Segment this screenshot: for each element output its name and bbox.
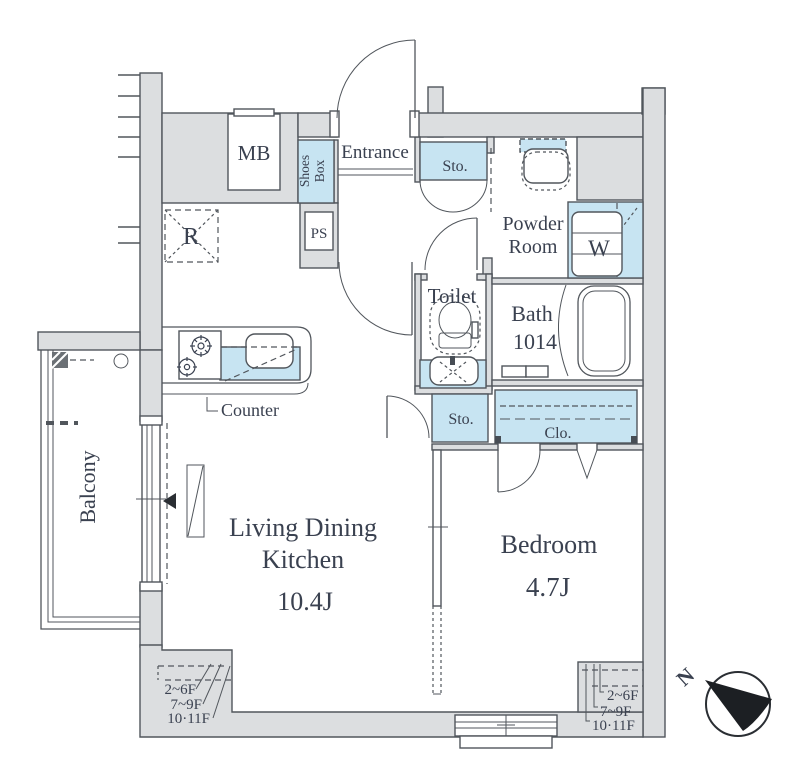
closet-door-arc [498, 450, 540, 492]
label-floors-right-3: 10·11F [592, 718, 635, 734]
wall-toilet-right [486, 274, 492, 390]
bath-ledge-2 [526, 366, 548, 377]
label-ldk-1: Living Dining [229, 513, 377, 542]
window-jamb-bottom [140, 582, 162, 591]
wall-left-lower [140, 585, 162, 647]
storage-top [420, 142, 487, 212]
counter-front-edge [162, 383, 308, 394]
wall-bedroom-top-3 [597, 444, 643, 450]
kitchen [162, 327, 311, 411]
label-meter-box: MB [238, 141, 271, 165]
label-bath-size: 1014 [513, 329, 557, 354]
entrance-door-arc [337, 40, 415, 118]
wall-bedroom-top-2 [540, 444, 577, 450]
window-frame [142, 421, 160, 585]
meter-box-lid [234, 109, 274, 116]
adjacent-unit-ticks [118, 75, 140, 243]
label-entrance: Entrance [341, 142, 409, 163]
label-bedroom: Bedroom [501, 530, 598, 559]
label-bath: Bath [511, 301, 553, 326]
label-shoes-box-2: Box [312, 160, 327, 183]
bedroom-window-sill [460, 736, 552, 748]
closet-bifold-door [577, 450, 597, 478]
bath-door-curve [558, 285, 568, 376]
label-shoes-box-1: Shoes [297, 155, 312, 187]
label-powder-1: Powder [502, 213, 563, 235]
label-powder-2: Room [509, 236, 558, 258]
toilet-seat [439, 333, 471, 348]
compass [705, 672, 772, 736]
wall-balcony-top [38, 332, 140, 350]
label-ldk-2: Kitchen [262, 545, 344, 574]
label-storage-mid: Sto. [448, 411, 473, 428]
label-pipe-space: PS [311, 226, 328, 242]
label-floors-left-1: 2~6F [165, 682, 196, 698]
label-washer: W [588, 236, 610, 261]
window-jamb-top [140, 416, 162, 425]
storage-door-arc-left [420, 180, 453, 212]
label-balcony: Balcony [75, 450, 100, 523]
storage-door-arc-right [453, 180, 487, 212]
label-refrigerator: R [183, 224, 199, 250]
label-counter: Counter [221, 400, 279, 420]
bedroom-window [455, 715, 557, 748]
label-compass-north: N [672, 663, 699, 691]
wall-bedroom-top-1 [432, 444, 498, 450]
wall-topright-block [577, 137, 643, 200]
label-floors-left-3: 10·11F [167, 711, 210, 727]
ldk-bedroom-partition [428, 450, 448, 694]
wall-left-mid [140, 350, 162, 421]
wall-bath-bottom [492, 380, 643, 386]
wall-bottom [140, 645, 643, 737]
bathtub-outer [578, 286, 630, 376]
window-shutter-leaf [187, 465, 204, 537]
counter-leader [207, 397, 218, 411]
wall-top-band-right [415, 113, 643, 137]
partition-wall [433, 450, 441, 606]
floorplan-page: MB Shoes Box Entrance Sto. PS R Powder R… [0, 0, 795, 770]
partition-sliding-section [433, 606, 441, 694]
wall-right-strip [643, 88, 665, 737]
label-storage-top: Sto. [442, 158, 467, 175]
bath-ledge-1 [502, 366, 526, 377]
label-toilet: Toilet [428, 284, 477, 308]
label-ldk-size: 10.4J [277, 587, 333, 616]
window-open-marker [163, 493, 176, 509]
label-bedroom-size: 4.7J [526, 572, 570, 602]
balcony-window [136, 416, 204, 591]
ldk-door [339, 262, 412, 335]
bathtub-inner [583, 291, 625, 371]
kitchen-sink [246, 334, 293, 368]
floorplan-svg: MB Shoes Box Entrance Sto. PS R Powder R… [0, 0, 795, 770]
wall-left-upper [140, 73, 162, 350]
balcony-drain [114, 354, 128, 368]
toilet-door-arc [425, 218, 477, 270]
label-floors-right-1: 2~6F [607, 688, 638, 704]
entrance-jamb-left [330, 111, 339, 137]
toilet-faucet [450, 356, 455, 365]
ldk-door-arc [339, 262, 412, 335]
storage-mid-door-arc [387, 396, 429, 438]
balcony-pipe-hatch [52, 352, 68, 368]
wall-sto-top-post [415, 137, 420, 182]
label-closet: Clo. [544, 425, 571, 442]
toilet-handle [472, 322, 478, 338]
wall-powder-bath [492, 278, 643, 284]
